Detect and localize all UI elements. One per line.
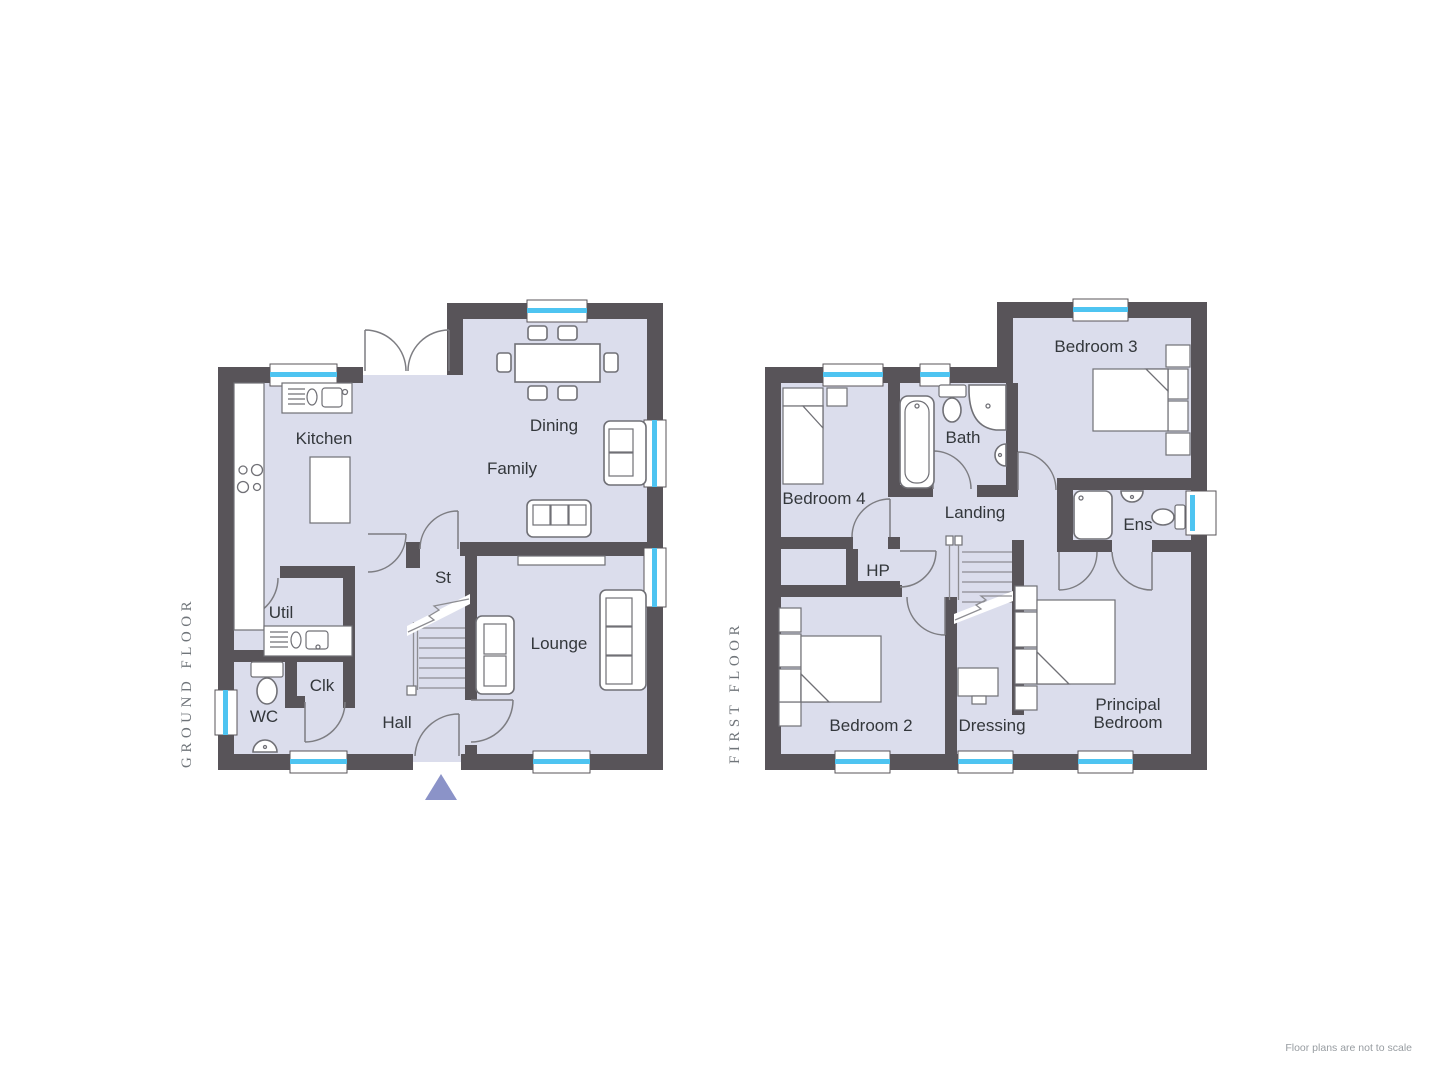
scale-note: Floor plans are not to scale — [1285, 1042, 1412, 1054]
room-label-kitchen: Kitchen — [296, 429, 353, 448]
window — [215, 690, 237, 735]
room-label-ens: Ens — [1123, 515, 1152, 534]
window — [290, 751, 347, 773]
room-label-util: Util — [269, 603, 294, 622]
bath-tub — [900, 396, 934, 488]
room-label-wc: WC — [250, 707, 278, 726]
room-label-bedroom4: Bedroom 4 — [782, 489, 865, 508]
room-label-landing: Landing — [945, 503, 1006, 522]
family-sofa — [604, 421, 646, 485]
window — [644, 548, 666, 607]
first-floor-plan: Bedroom 3 Bath Bedroom 4 Landing Ens HP … — [727, 299, 1216, 773]
room-label-st: St — [435, 568, 451, 587]
window — [644, 420, 666, 487]
lounge-sofa-right — [600, 590, 646, 690]
lounge-sofa-left — [476, 616, 514, 694]
room-label-clk: Clk — [310, 676, 335, 695]
room-label-lounge: Lounge — [531, 634, 588, 653]
ground-floor-title: GROUND FLOOR — [179, 597, 195, 768]
french-doors — [365, 330, 449, 371]
kitchen-sink-unit — [282, 383, 352, 413]
window — [958, 751, 1013, 773]
window — [1073, 299, 1128, 321]
window — [533, 751, 590, 773]
room-label-principal-line2: Bedroom — [1094, 713, 1163, 732]
window — [1078, 751, 1133, 773]
ground-floor-plan: Kitchen Dining Family Util St Lounge WC … — [179, 300, 666, 800]
room-label-bath: Bath — [946, 428, 981, 447]
room-label-hp: HP — [866, 561, 890, 580]
entrance-arrow — [425, 774, 457, 800]
room-label-family: Family — [487, 459, 538, 478]
ens-shower — [1074, 491, 1112, 539]
lounge-shelf — [518, 556, 605, 565]
kitchen-counter — [234, 383, 264, 630]
window — [835, 751, 890, 773]
room-label-dressing: Dressing — [958, 716, 1025, 735]
kitchen-island — [310, 457, 350, 523]
floorplan-drawing: Kitchen Dining Family Util St Lounge WC … — [0, 0, 1440, 1080]
window — [1186, 491, 1216, 535]
room-label-bedroom3: Bedroom 3 — [1054, 337, 1137, 356]
family-loveseat — [527, 500, 591, 537]
first-floor-title: FIRST FLOOR — [727, 621, 743, 764]
window — [920, 364, 950, 386]
room-label-bedroom2: Bedroom 2 — [829, 716, 912, 735]
floorplan-page: Kitchen Dining Family Util St Lounge WC … — [0, 0, 1440, 1080]
room-label-principal-line1: Principal — [1095, 695, 1160, 714]
window — [527, 300, 587, 322]
room-label-dining: Dining — [530, 416, 578, 435]
room-label-hall: Hall — [382, 713, 411, 732]
window — [823, 364, 883, 386]
util-counter — [264, 626, 352, 656]
